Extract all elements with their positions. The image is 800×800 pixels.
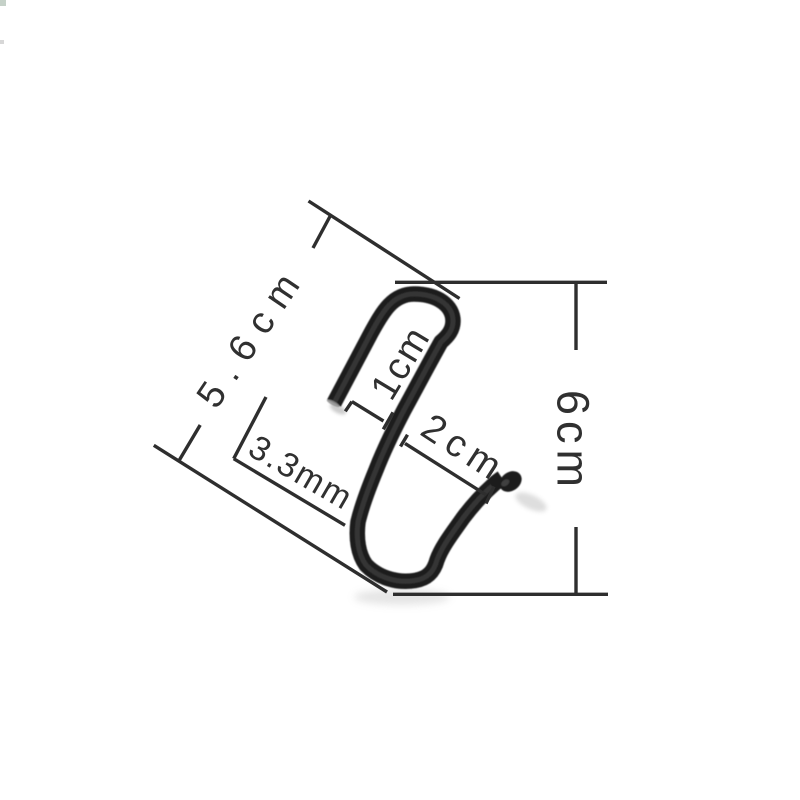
svg-text:6cm: 6cm — [548, 390, 599, 493]
